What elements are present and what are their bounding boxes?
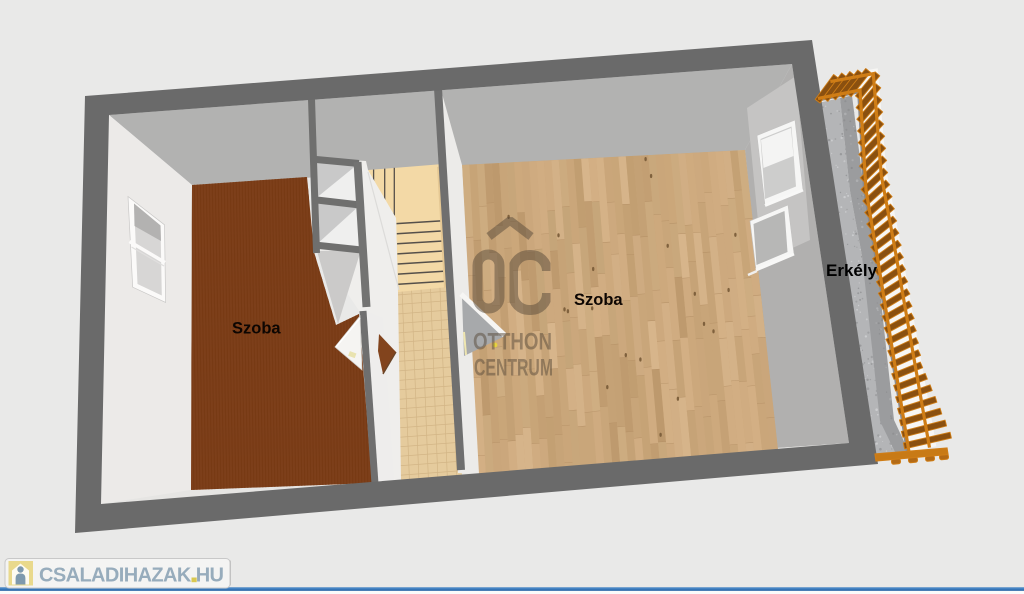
svg-text:CSALADIHAZAK.HU: CSALADIHAZAK.HU (39, 565, 224, 587)
svg-text:OTTHON: OTTHON (473, 329, 552, 356)
svg-text:Szoba: Szoba (574, 291, 623, 309)
svg-text:CENTRUM: CENTRUM (474, 355, 553, 382)
svg-text:Erkély: Erkély (826, 261, 878, 280)
svg-text:Szoba: Szoba (232, 320, 281, 338)
